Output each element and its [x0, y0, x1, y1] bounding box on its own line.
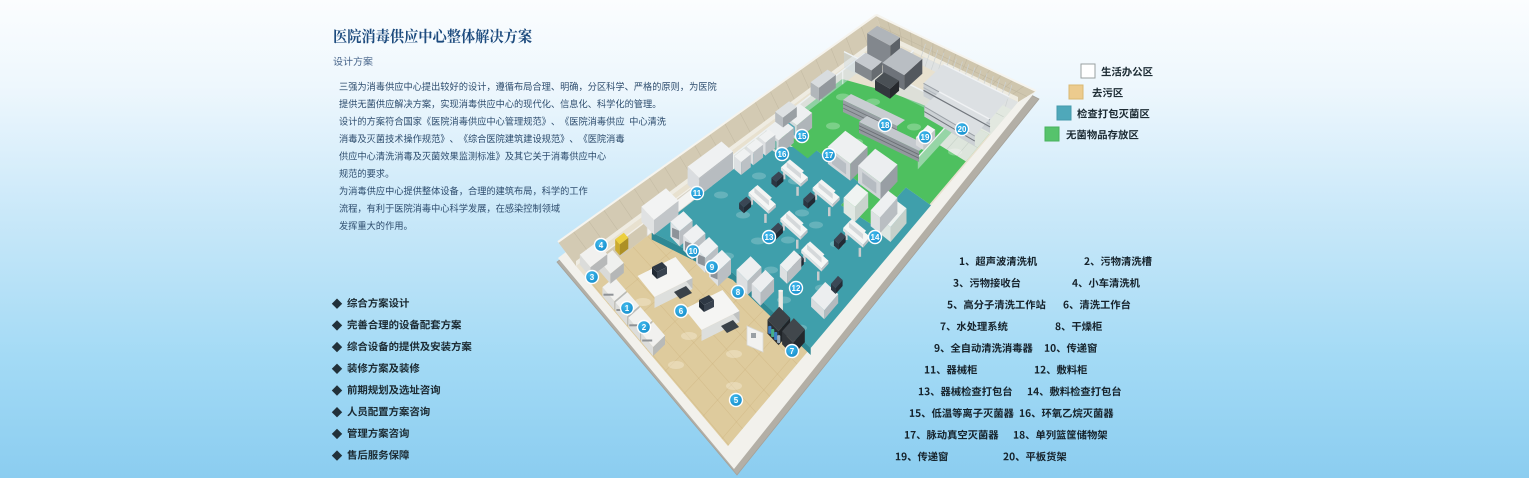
- svg-text:15: 15: [798, 132, 807, 141]
- svg-text:20: 20: [958, 125, 967, 134]
- svg-text:3: 3: [590, 273, 595, 282]
- svg-text:14: 14: [871, 233, 880, 242]
- svg-text:5: 5: [734, 396, 739, 405]
- svg-text:7: 7: [790, 347, 795, 356]
- svg-text:8: 8: [736, 288, 741, 297]
- svg-text:10: 10: [689, 247, 698, 256]
- svg-text:6: 6: [679, 307, 684, 316]
- svg-text:19: 19: [921, 133, 930, 142]
- svg-text:18: 18: [881, 121, 890, 130]
- svg-text:17: 17: [825, 151, 834, 160]
- svg-text:4: 4: [599, 241, 604, 250]
- svg-text:13: 13: [765, 233, 774, 242]
- svg-text:1: 1: [625, 304, 630, 313]
- svg-text:9: 9: [710, 263, 715, 272]
- svg-text:16: 16: [778, 150, 787, 159]
- svg-text:12: 12: [792, 284, 801, 293]
- svg-text:11: 11: [693, 189, 702, 198]
- svg-text:2: 2: [642, 323, 647, 332]
